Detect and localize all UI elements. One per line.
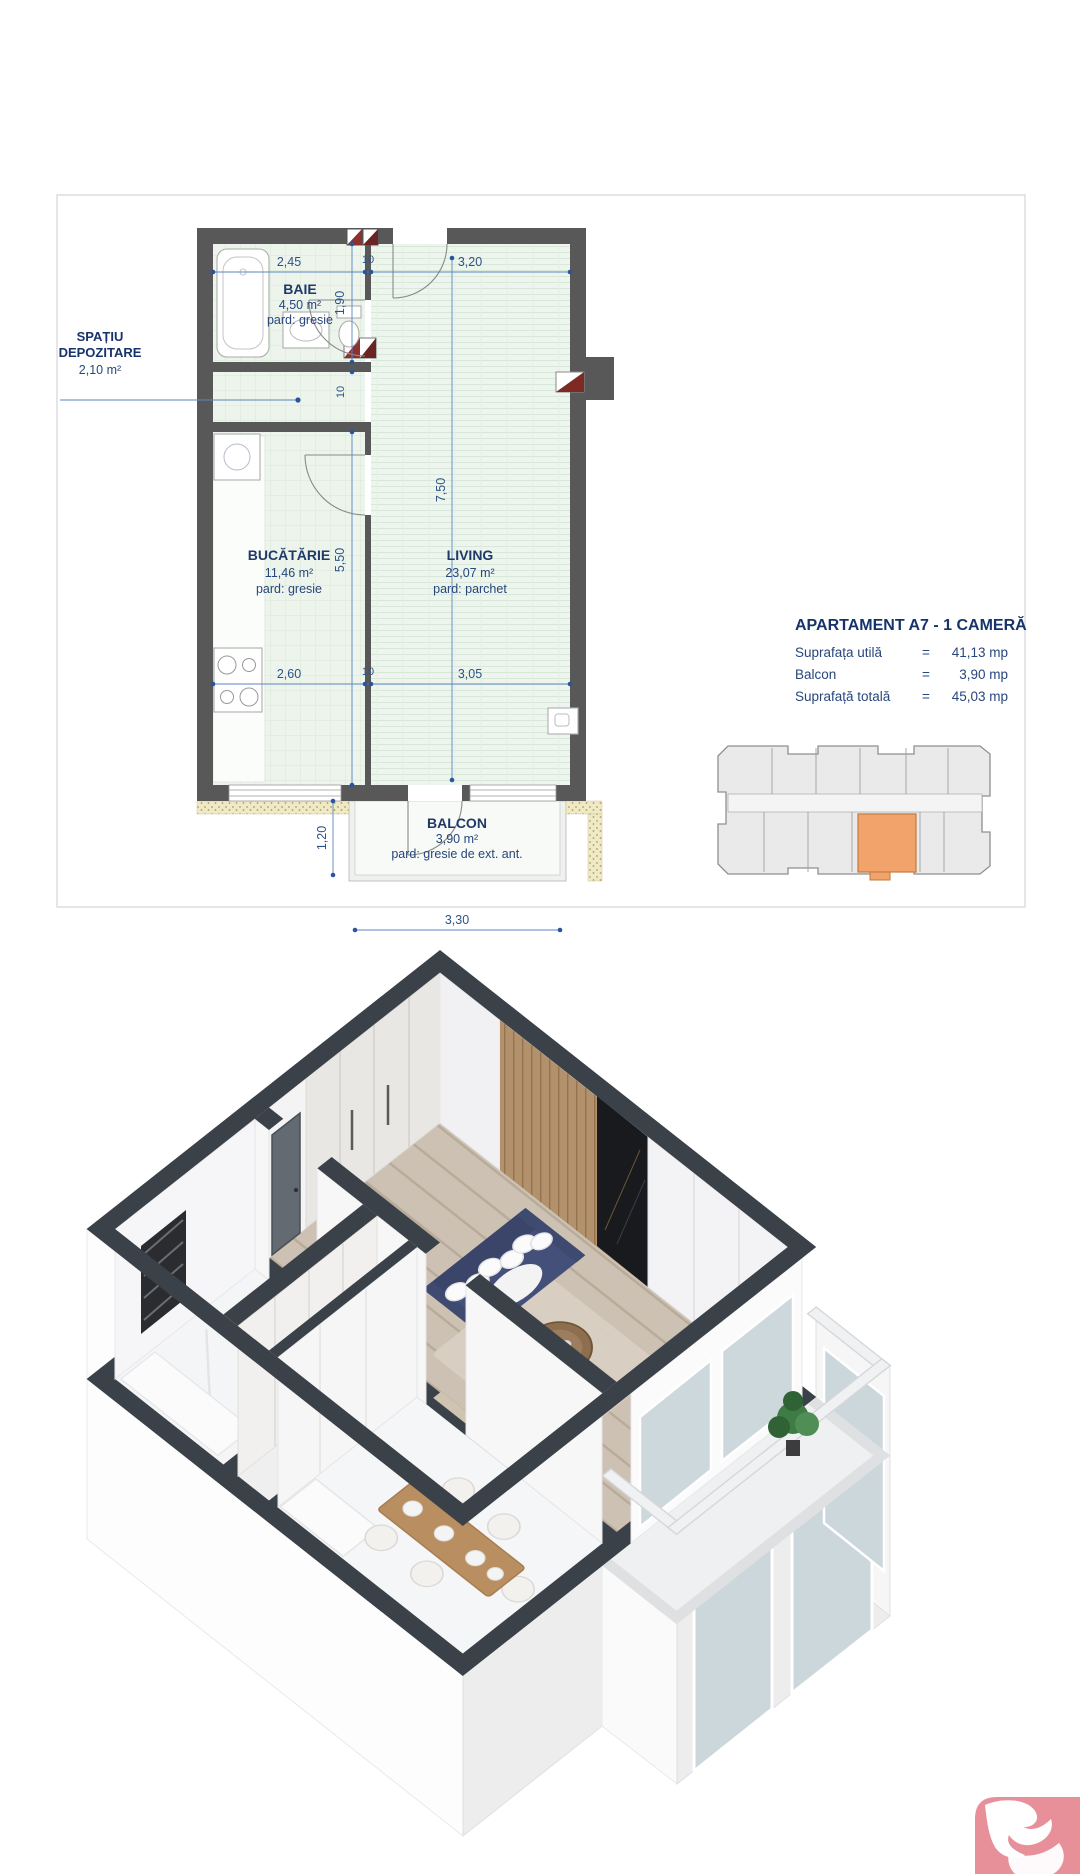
room-bucatarie-floor: pard: gresie <box>256 582 322 596</box>
room-balcon-floor: pard: gresie de ext. ant. <box>391 847 522 861</box>
dim-top-3: 3,20 <box>458 255 482 269</box>
room-baie-floor: pard: gresie <box>267 313 333 327</box>
floor-plan-sheet: 2,45 10 3,20 1,90 10 5,50 7,50 2,60 10 3… <box>57 195 1027 932</box>
room-depozitare-name1: SPAȚIU <box>77 329 124 344</box>
hatch-strip-side <box>588 814 602 881</box>
hatch-strip-right <box>566 801 602 814</box>
info-row3-label: Suprafață totală <box>795 689 891 704</box>
dim-bottom-3: 3,05 <box>458 667 482 681</box>
room-depozitare-area: 2,10 m² <box>79 363 121 377</box>
dim-left-1: 1,90 <box>333 291 347 315</box>
room-bucatarie-name: BUCĂTĂRIE <box>248 547 330 563</box>
dim-top-1: 2,45 <box>277 255 301 269</box>
room-balcon-name: BALCON <box>427 815 487 831</box>
living-fixture <box>548 708 578 734</box>
info-row1-label: Suprafața utilă <box>795 645 883 660</box>
bathtub <box>217 249 269 357</box>
key-plan-highlighted-unit <box>858 814 916 872</box>
washing-machine <box>214 434 260 480</box>
info-row2-label: Balcon <box>795 667 836 682</box>
dim-balcony-depth: 1,20 <box>315 826 329 850</box>
toilet-bowl <box>339 321 359 347</box>
info-row3-eq: = <box>922 689 930 704</box>
room-balcon-area: 3,90 m² <box>436 832 478 846</box>
room-living-floor: pard: parchet <box>433 582 507 596</box>
dim-top-2: 10 <box>362 254 374 266</box>
room-living-name: LIVING <box>447 547 494 563</box>
page-canvas: 2,45 10 3,20 1,90 10 5,50 7,50 2,60 10 3… <box>0 0 1080 1874</box>
dim-left-3: 5,50 <box>333 548 347 572</box>
room-depozitare-name2: DEPOZITARE <box>59 345 142 360</box>
room-baie-name: BAIE <box>283 281 316 297</box>
dim-balcony-width: 3,30 <box>445 913 469 927</box>
dim-left-2: 10 <box>335 386 347 398</box>
brand-logo <box>975 1797 1080 1874</box>
info-row1-value: 41,13 mp <box>952 645 1008 660</box>
living-floor <box>371 244 570 785</box>
info-title: APARTAMENT A7 - 1 CAMERĂ <box>795 615 1027 634</box>
dim-right: 7,50 <box>434 478 448 502</box>
render-3d <box>87 950 891 1836</box>
info-row3-value: 45,03 mp <box>952 689 1008 704</box>
kitchen-counter <box>213 436 265 782</box>
dim-bottom-2: 10 <box>362 666 374 678</box>
hatch-strip-left <box>197 801 349 814</box>
info-row2-eq: = <box>922 667 930 682</box>
key-plan <box>718 746 990 880</box>
entry-door-3d <box>272 1113 300 1255</box>
info-row1-eq: = <box>922 645 930 660</box>
room-bucatarie-area: 11,46 m² <box>265 566 313 580</box>
info-row2-value: 3,90 mp <box>959 667 1008 682</box>
dim-bottom-1: 2,60 <box>277 667 301 681</box>
room-baie-area: 4,50 m² <box>279 298 321 312</box>
room-living-area: 23,07 m² <box>445 566 494 580</box>
